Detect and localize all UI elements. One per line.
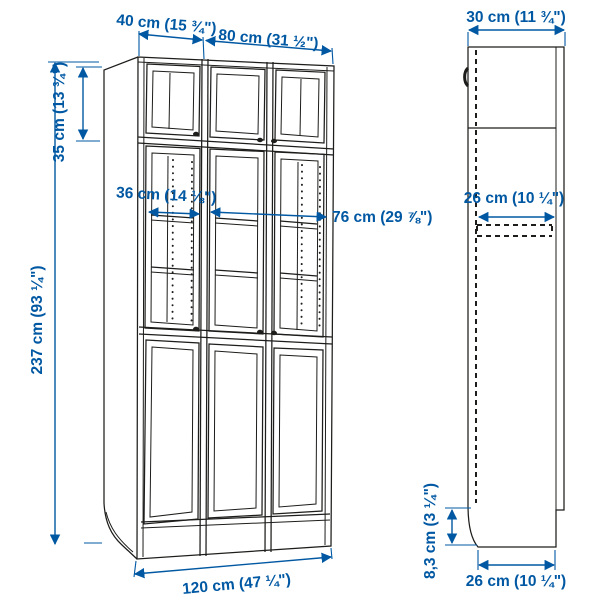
front-view xyxy=(104,57,334,559)
divider-right-a xyxy=(265,62,267,552)
side-panel-outline xyxy=(104,57,138,559)
dim-extension-height: 35 cm (13 ¾") xyxy=(51,62,102,162)
dim-depth-top: 30 cm (11 ¾") xyxy=(466,9,566,46)
shelf-peg-holes xyxy=(173,160,174,320)
dim-plinth-height-label: 8,3 cm (3 ¼") xyxy=(422,483,439,579)
dim-plinth-height: 8,3 cm (3 ¼") xyxy=(422,483,477,579)
divider-left-a xyxy=(200,59,202,556)
panel-doors xyxy=(144,340,323,524)
dim-base-depth-label: 26 cm (10 ¼") xyxy=(466,573,566,590)
door-knob-icon xyxy=(193,132,199,136)
door-knob-icon xyxy=(271,139,277,143)
dim-left-unit-width: 40 cm (15 ¾") xyxy=(116,12,218,59)
dim-left-unit-width-label: 40 cm (15 ¾") xyxy=(116,12,218,38)
dim-total-width-label: 120 cm (47 ¼") xyxy=(182,571,292,598)
dim-right-unit-width-label: 80 cm (31 ½") xyxy=(218,27,320,53)
diagram-canvas: 40 cm (15 ¾") 80 cm (31 ½") 30 cm (11 ¾"… xyxy=(0,0,600,600)
dimension-diagram: 40 cm (15 ¾") 80 cm (31 ½") 30 cm (11 ¾"… xyxy=(0,0,600,600)
extension-glass-doors xyxy=(146,64,325,143)
door-knob-icon xyxy=(271,331,277,335)
dim-interior-width-right-label: 76 cm (29 ⅞") xyxy=(332,209,432,226)
shelf-peg-holes xyxy=(192,162,193,322)
dim-total-height-label: 237 cm (93 ¼") xyxy=(29,265,46,374)
dim-extension-height-label: 35 cm (13 ¾") xyxy=(51,62,68,162)
shelf-peg-holes xyxy=(302,165,303,328)
dim-depth-top-label: 30 cm (11 ¾") xyxy=(466,9,566,26)
door-knob-icon xyxy=(257,330,263,334)
side-view xyxy=(465,47,564,547)
dim-right-unit-width: 80 cm (31 ½") xyxy=(206,27,333,64)
door-knob-icon xyxy=(257,138,263,142)
side-panel-toekick-line xyxy=(106,512,133,552)
side-view-outline xyxy=(468,47,564,547)
door-knob-icon xyxy=(193,327,199,331)
dim-shelf-depth-label: 26 cm (10 ¼") xyxy=(464,190,564,207)
top-rail-inner xyxy=(138,62,334,71)
dim-base-depth: 26 cm (10 ¼") xyxy=(466,550,566,590)
main-glass-doors xyxy=(145,146,324,337)
dim-interior-width-right: 76 cm (29 ⅞") xyxy=(211,209,432,226)
dim-total-width: 120 cm (47 ¼") xyxy=(134,548,332,598)
right-stile-inner xyxy=(325,67,327,545)
shelf-peg-holes xyxy=(320,167,321,330)
shelf-profile-dashed xyxy=(477,225,552,236)
dim-shelf-depth: 26 cm (10 ¼") xyxy=(464,190,564,217)
